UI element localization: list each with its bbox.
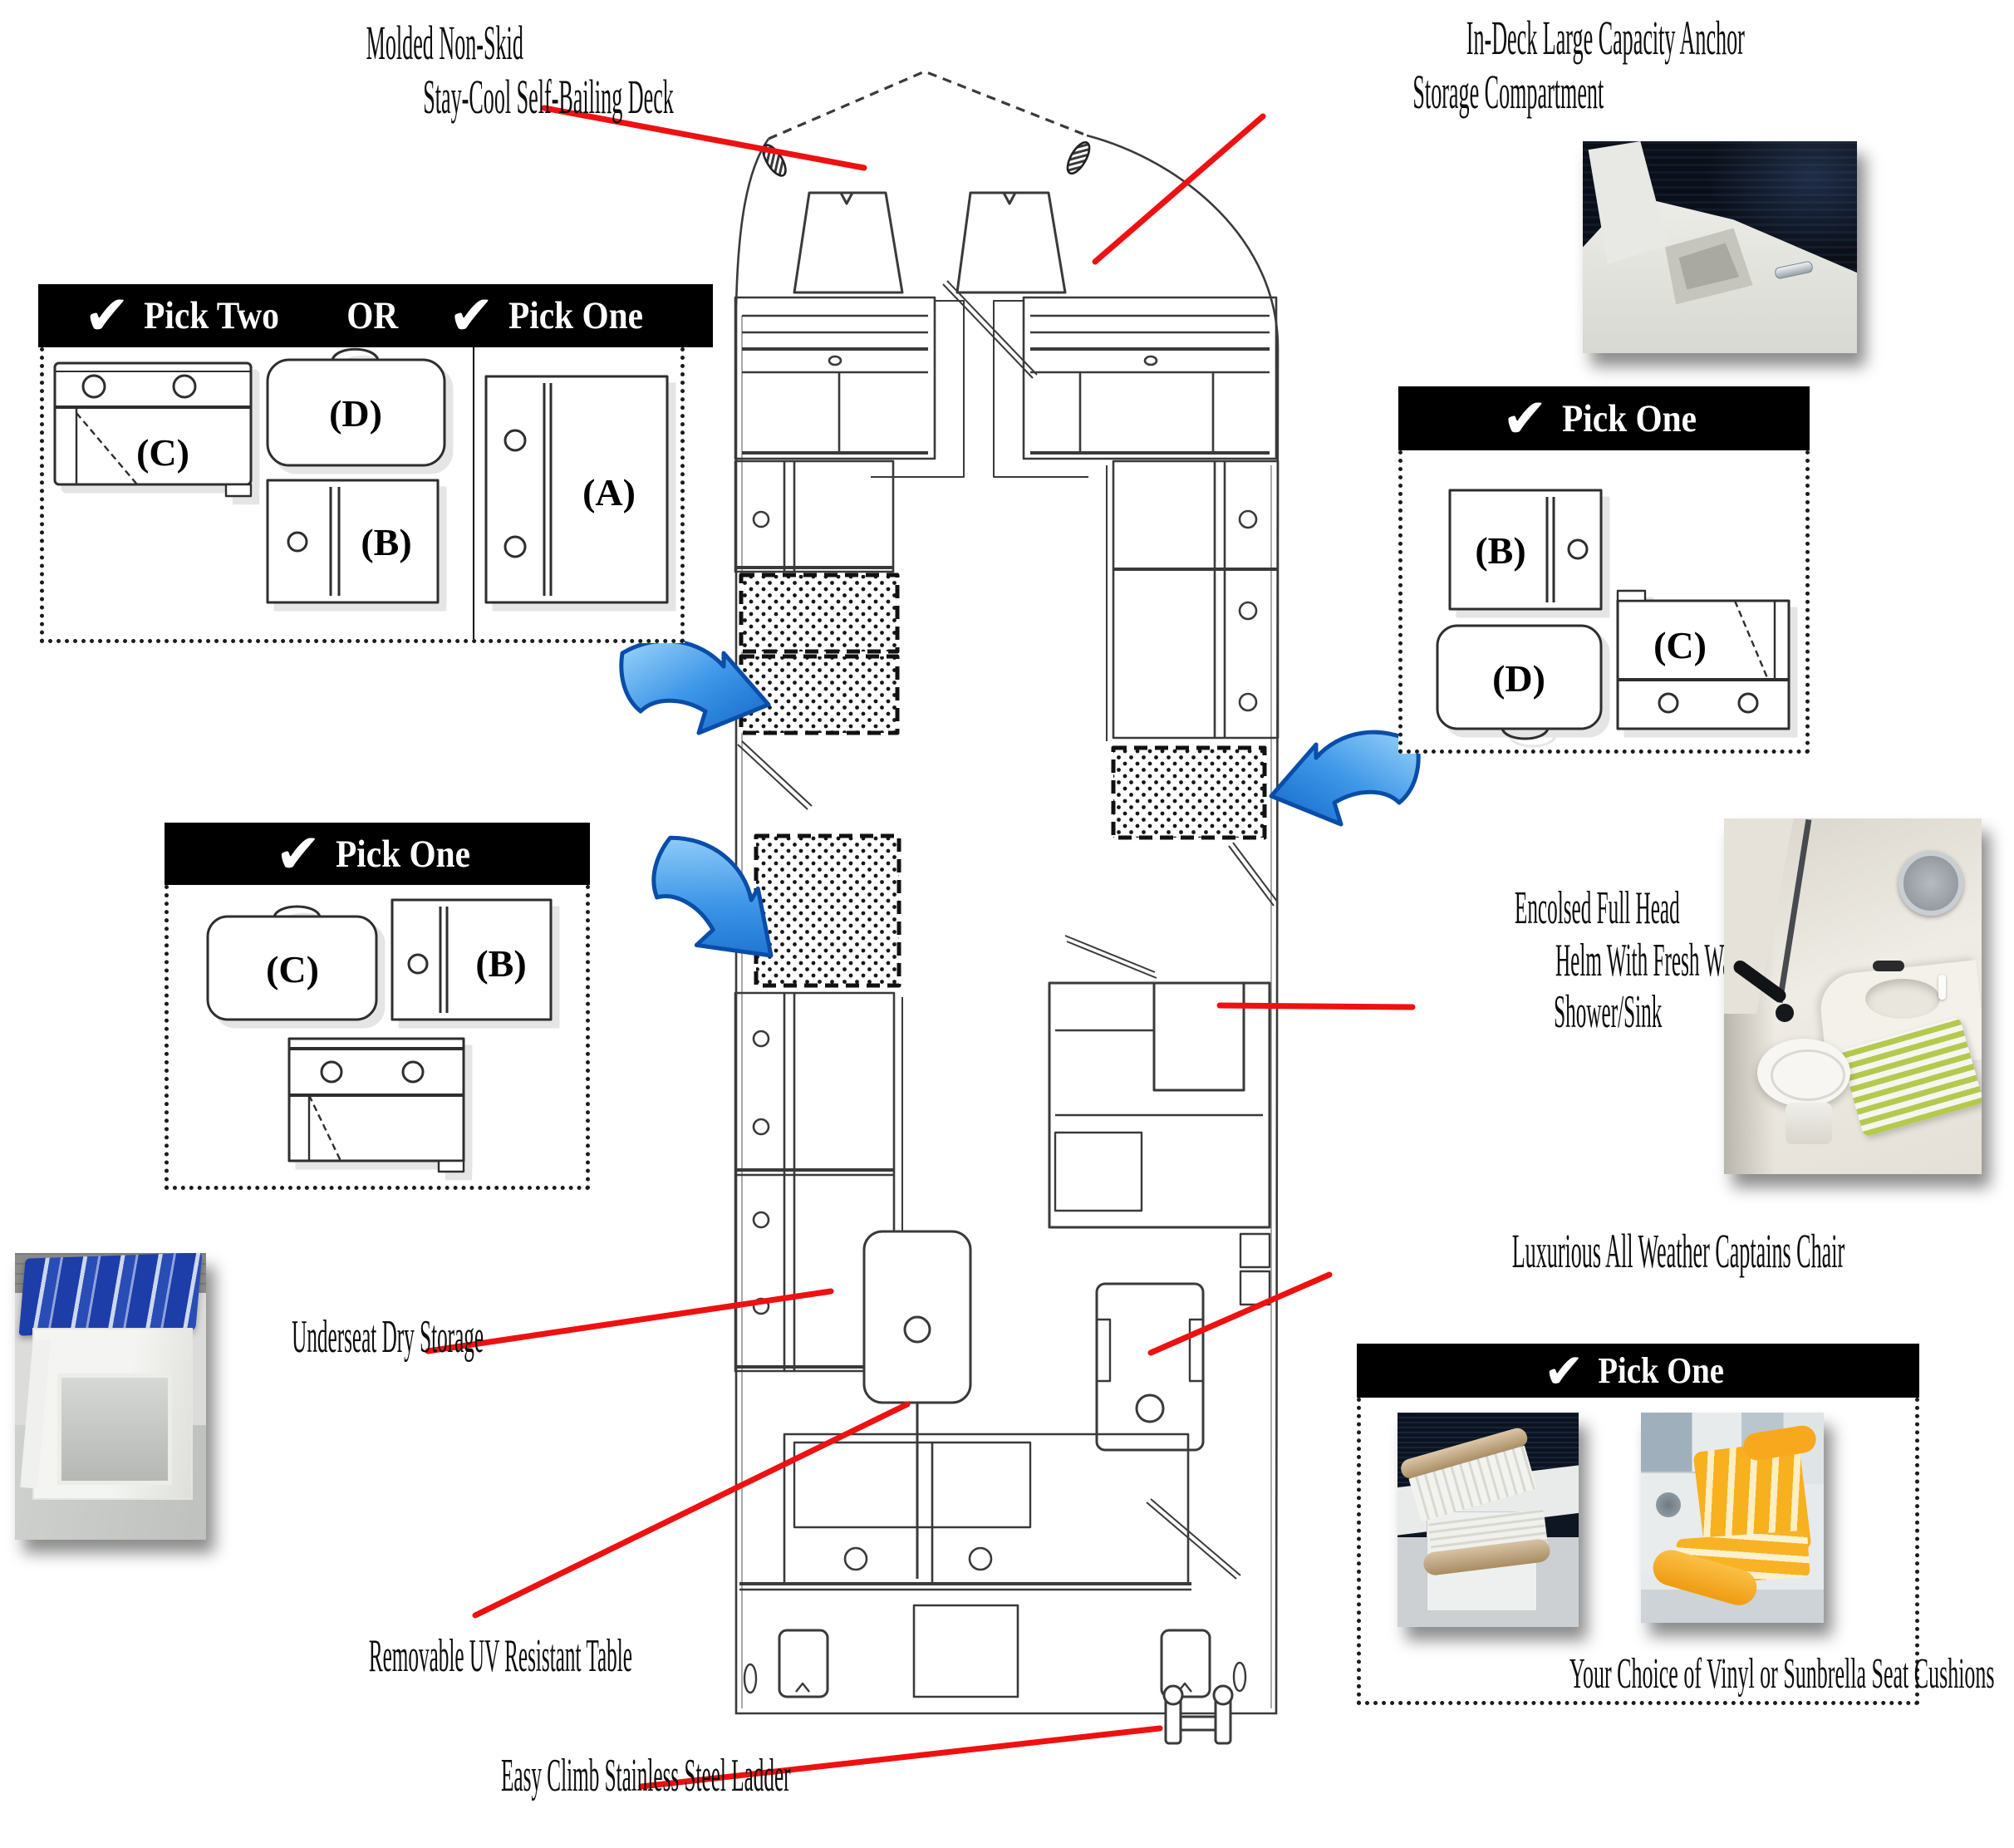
anchor-callout: In-Deck Large Capacity Anchor Storage Co…	[1296, 12, 1695, 120]
cushions-options-box: ✔ Pick One Your Choice of Vinyl or Sunbr…	[1357, 1344, 1919, 1705]
head-callout: Encolsed Full Head Helm With Fresh Water…	[1313, 882, 1662, 1039]
port-options-box: ✔ Pick One (C) (B)	[165, 823, 590, 1190]
starboard-options-furniture: (B) (D) (C)	[1398, 450, 1810, 754]
option-c-cooler: (C)	[208, 907, 376, 1020]
option-c-grill: (C)	[1618, 591, 1789, 729]
option-d-cooler: (D)	[1437, 626, 1601, 739]
option-d-cooler: (D)	[268, 349, 445, 465]
pick-two-label: Pick Two	[144, 293, 279, 338]
stern-ladder	[1164, 1686, 1232, 1743]
transom-door	[1147, 1499, 1240, 1579]
svg-text:(A): (A)	[582, 471, 636, 514]
pick-one-label: Pick One	[1598, 1349, 1724, 1392]
deck-callout: Molded Non-Skid Stay-Cool Self-Bailing D…	[270, 17, 553, 125]
bow-options-box: ✔ Pick Two OR ✔ Pick One (C)	[38, 284, 713, 643]
starboard-bench	[1107, 461, 1278, 741]
port-console	[735, 297, 964, 477]
anchor-storage-photo	[1583, 141, 1857, 353]
ladder-callout: Easy Climb Stainless Steel Ladder	[324, 1750, 673, 1802]
porthole	[1899, 851, 1963, 916]
option-arrows	[621, 641, 1418, 980]
removable-table	[864, 1231, 970, 1579]
side-gate-starboard	[1229, 843, 1278, 906]
svg-text:(C): (C)	[266, 948, 319, 990]
captains-chair	[1097, 1284, 1203, 1450]
option-a-unit: (A)	[486, 376, 667, 602]
underseat-callout: Underseat Dry Storage	[174, 1311, 457, 1364]
anchor-callout-line1: In-Deck Large Capacity Anchor	[1466, 12, 1745, 66]
helm-head-console	[1049, 936, 1270, 1305]
svg-text:(C): (C)	[136, 431, 189, 474]
companionway-door	[943, 281, 1037, 378]
bow-options-header: ✔ Pick Two OR ✔ Pick One	[38, 284, 713, 347]
table-callout: Removable UV Resistant Table	[208, 1630, 532, 1683]
starboard-options-box: ✔ Pick One (B) (D)	[1398, 386, 1810, 754]
option-c-grill: (C)	[55, 363, 251, 496]
blue-striped-cushion	[19, 1253, 203, 1336]
starboard-console	[994, 297, 1276, 477]
port-bench-aft	[735, 993, 902, 1375]
underseat-storage-photo	[15, 1253, 206, 1540]
hull	[736, 71, 1278, 1713]
option-sink-unit	[289, 1039, 464, 1172]
port-options-furniture: (C) (B)	[165, 885, 590, 1190]
anchor-callout-line2: Storage Compartment	[1412, 66, 1604, 120]
arrow-starboard	[1271, 732, 1418, 824]
leader-underseat	[428, 1291, 831, 1351]
leader-anchor	[1095, 116, 1263, 262]
svg-text:(B): (B)	[1475, 529, 1525, 572]
bow-cleat-starboard	[1063, 139, 1094, 176]
bow-cleat-port	[759, 141, 790, 179]
svg-text:(C): (C)	[1653, 624, 1707, 666]
option-b-livewell: (B)	[392, 900, 551, 1020]
pick-one-label: Pick One	[1562, 396, 1697, 441]
bow-options-furniture: (C) (D) (B) (A	[38, 347, 713, 643]
side-gate-port	[738, 741, 812, 809]
or-label: OR	[347, 293, 399, 338]
sink-bowl	[1865, 979, 1940, 1019]
starboard-options-header: ✔ Pick One	[1398, 386, 1810, 450]
sunbrella-cushion-photo	[1641, 1413, 1824, 1623]
leader-table	[475, 1404, 907, 1615]
deck-storage-hatches	[741, 575, 1265, 985]
vinyl-cushion-photo	[1398, 1413, 1579, 1627]
option-b-livewell: (B)	[1450, 490, 1601, 609]
pick-one-label: Pick One	[336, 832, 470, 877]
deck-callout-line1: Molded Non-Skid	[366, 17, 523, 71]
head-compartment-photo	[1724, 818, 1982, 1174]
chair-callout: Luxurious All Weather Captains Chair	[1309, 1225, 1774, 1279]
pick-one-label: Pick One	[508, 293, 643, 338]
bow-seatback-starboard	[957, 193, 1065, 292]
bow-seatback-port	[794, 193, 902, 292]
leader-chair	[1151, 1275, 1329, 1353]
arrow-port-forward	[621, 641, 769, 733]
port-bench-forward	[735, 461, 893, 572]
option-b-livewell: (B)	[268, 480, 438, 602]
svg-text:(B): (B)	[361, 521, 411, 563]
svg-text:(D): (D)	[329, 392, 382, 435]
aft-bench	[739, 1434, 1191, 1590]
arrow-port-aft	[630, 827, 803, 981]
port-options-header: ✔ Pick One	[165, 823, 590, 885]
cushions-caption: Your Choice of Vinyl or Sunbrella Seat C…	[1357, 1649, 1919, 1698]
cushions-options-header: ✔ Pick One	[1357, 1344, 1919, 1398]
stern-details	[744, 1605, 1245, 1697]
deck-callout-line2: Stay-Cool Self-Bailing Deck	[423, 71, 674, 125]
boat-options-diagram-page: { "icons": { "check": "✔" }, "labels": {…	[0, 0, 2014, 1848]
svg-text:(D): (D)	[1492, 657, 1545, 700]
svg-text:(B): (B)	[475, 942, 526, 985]
faucet	[1938, 975, 1946, 1000]
